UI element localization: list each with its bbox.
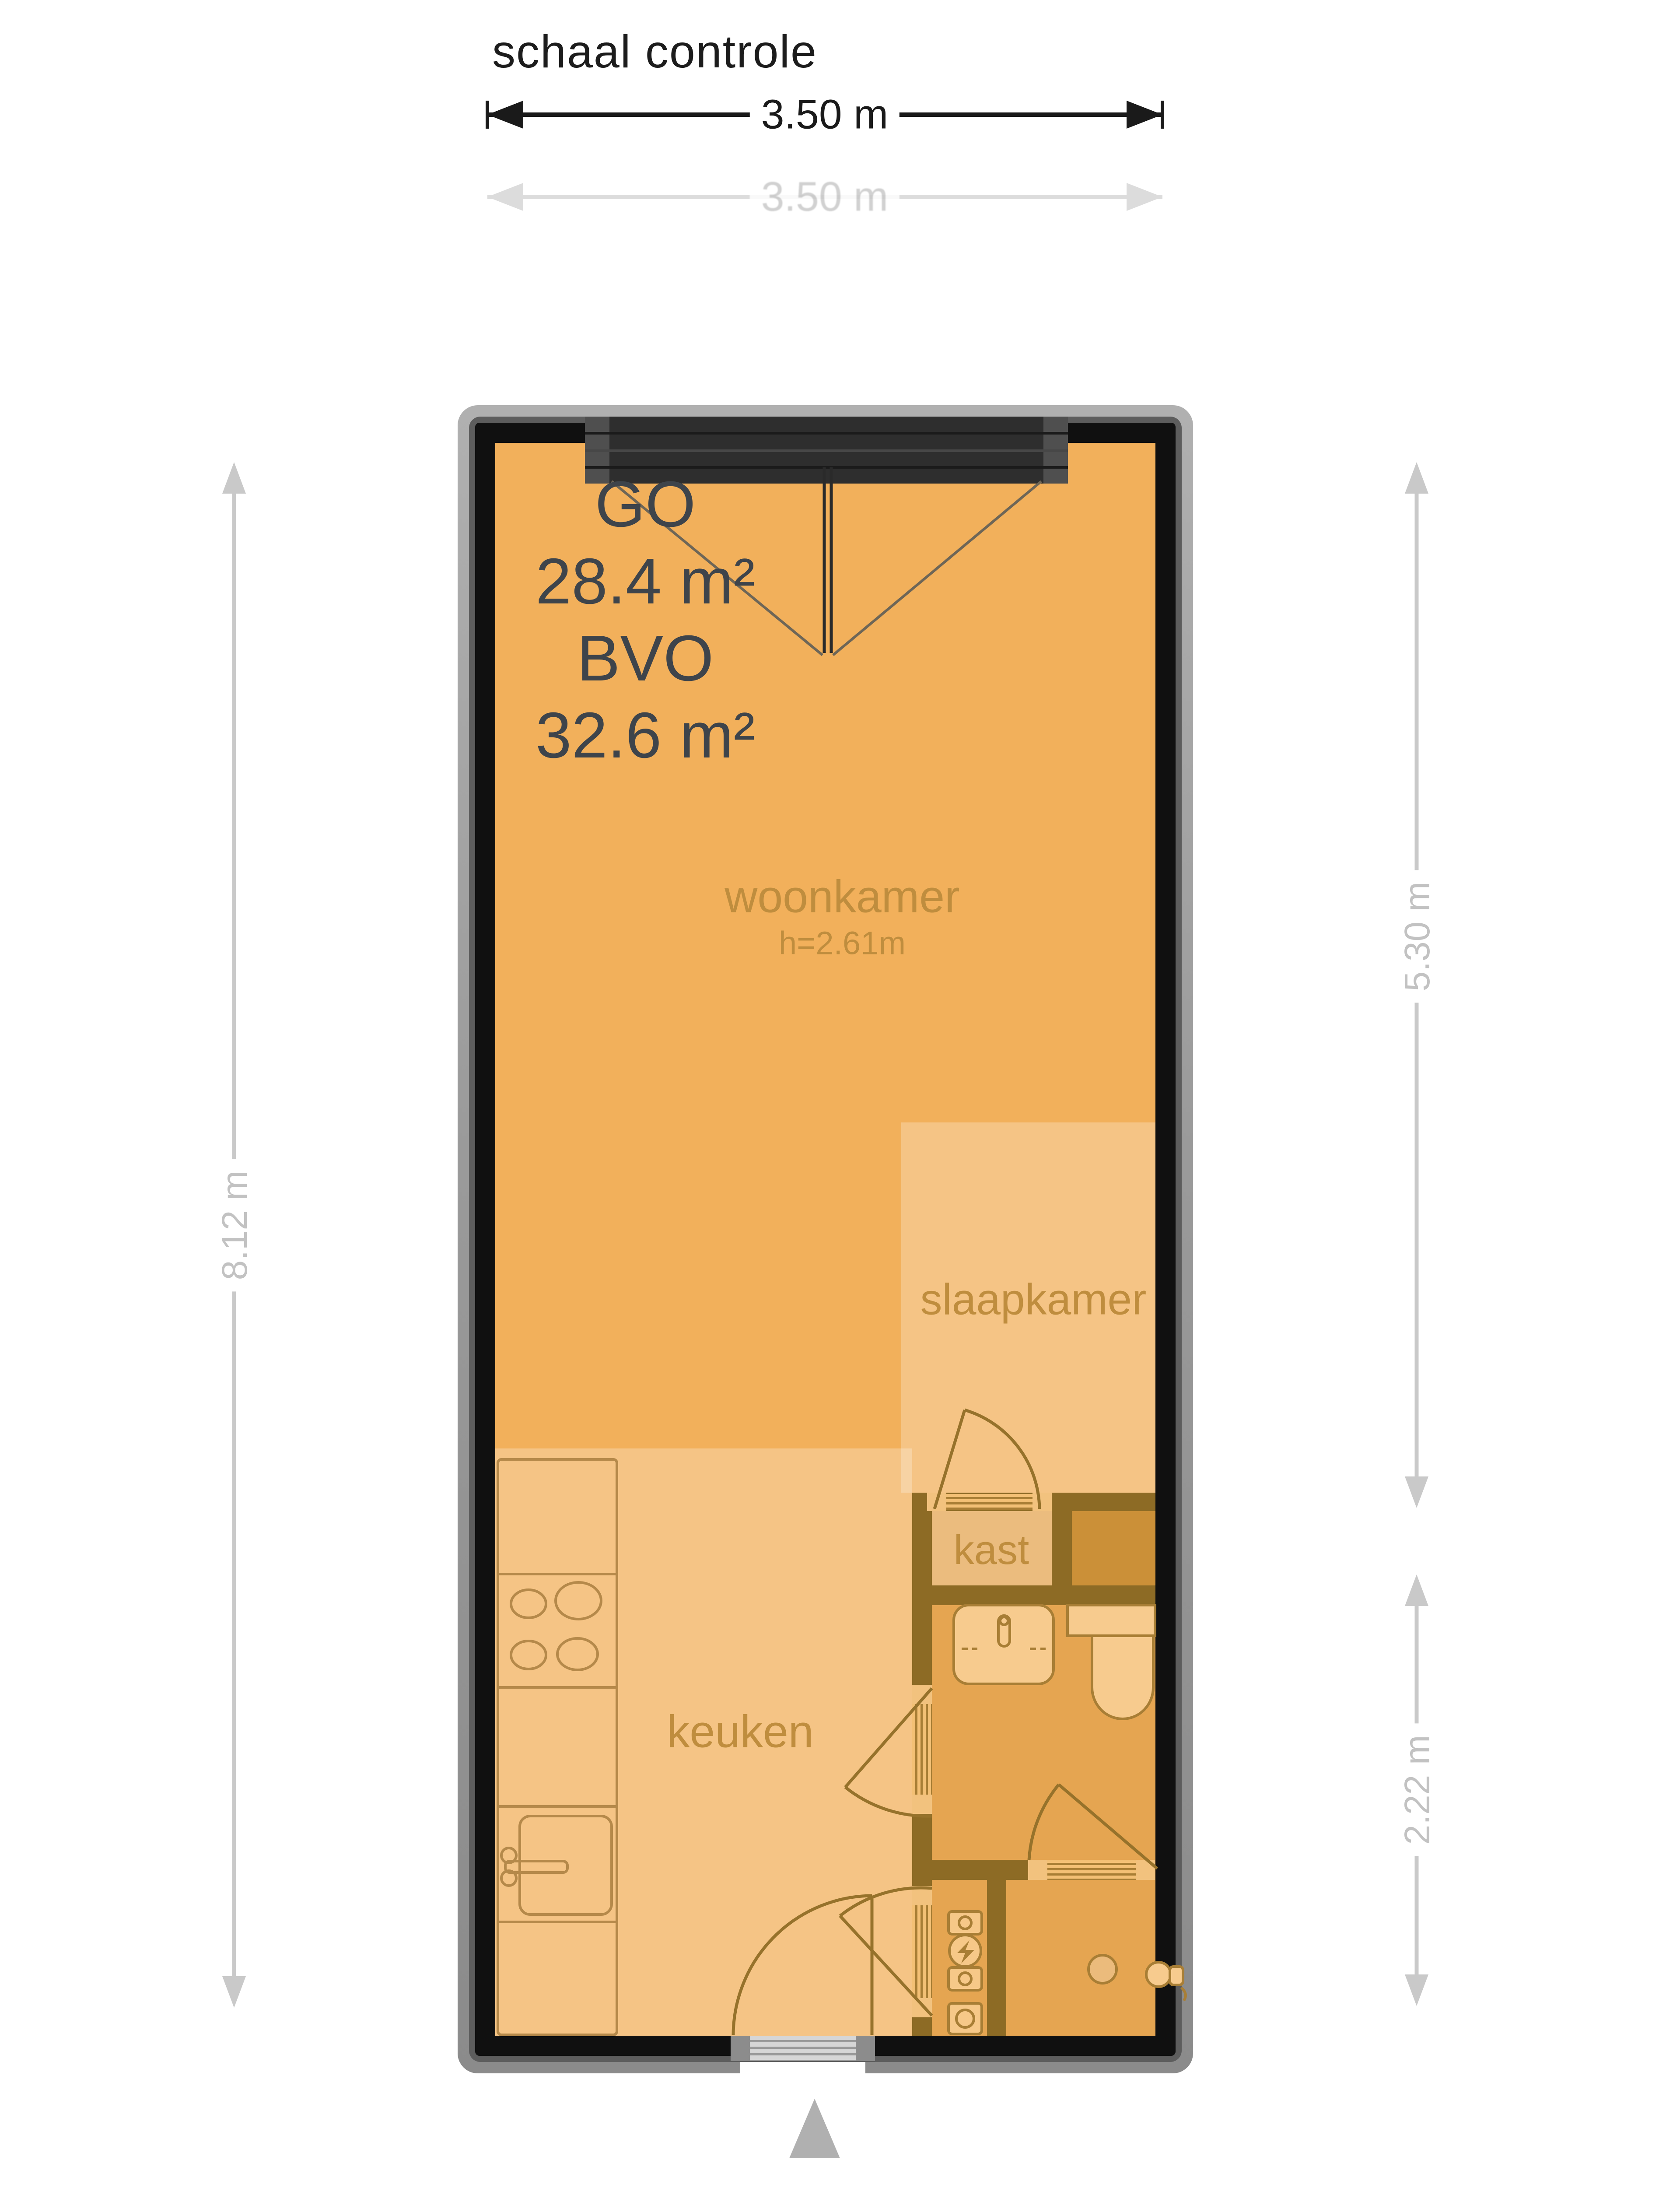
wall-under-kast [912,1585,1155,1605]
entrance-arrow-icon [789,2099,840,2158]
room-label-kast: kast [954,1526,1029,1574]
wall-bath-left-lower [912,2017,932,2036]
dimension-label-left: 8.12 m [212,1159,258,1292]
jamb [912,1795,932,1814]
jamb [912,1886,932,1905]
jamb [1032,1493,1052,1511]
floorplan-page: schaal controle [0,0,1680,2188]
threshold-entrance-door [731,2036,875,2061]
dimension-label-right-bottom: 2.22 m [1394,1724,1441,1856]
wall-bath-left-upper [912,1493,932,1685]
room-height-note: h=2.61m [779,925,906,962]
entrance-jamb-left [731,2036,750,2061]
room-label-slaapkamer: slaapkamer [920,1275,1147,1325]
jamb [1136,1860,1155,1880]
go-label: GO [514,466,777,543]
area-figures: GO 28.4 m² BVO 32.6 m² [514,466,777,774]
jamb [912,1998,932,2017]
room-label-keuken: keuken [667,1706,813,1758]
shaft [1072,1511,1155,1585]
dimension-label-right-top: 5.30 m [1394,870,1441,1003]
room-label-woonkamer: woonkamer [724,871,960,923]
entrance-jamb-right [856,2036,875,2061]
wall-kast-shaft [1052,1493,1072,1585]
jamb [1028,1860,1047,1880]
wall-bath-corridor [912,1860,1028,1880]
bvo-label: BVO [514,620,777,697]
wall-corridor-shower [987,1880,1006,2036]
page-title: schaal controle [492,25,817,78]
scale-bar-reflection-label: 3.50 m [750,171,899,224]
go-value: 28.4 m² [514,543,777,620]
scale-bar-label: 3.50 m [750,88,899,141]
jamb [912,1685,932,1704]
threshold-meter-closet-door [912,1886,932,2017]
jamb [927,1493,946,1511]
entrance-gap [740,2062,865,2075]
bvo-value: 32.6 m² [514,697,777,774]
